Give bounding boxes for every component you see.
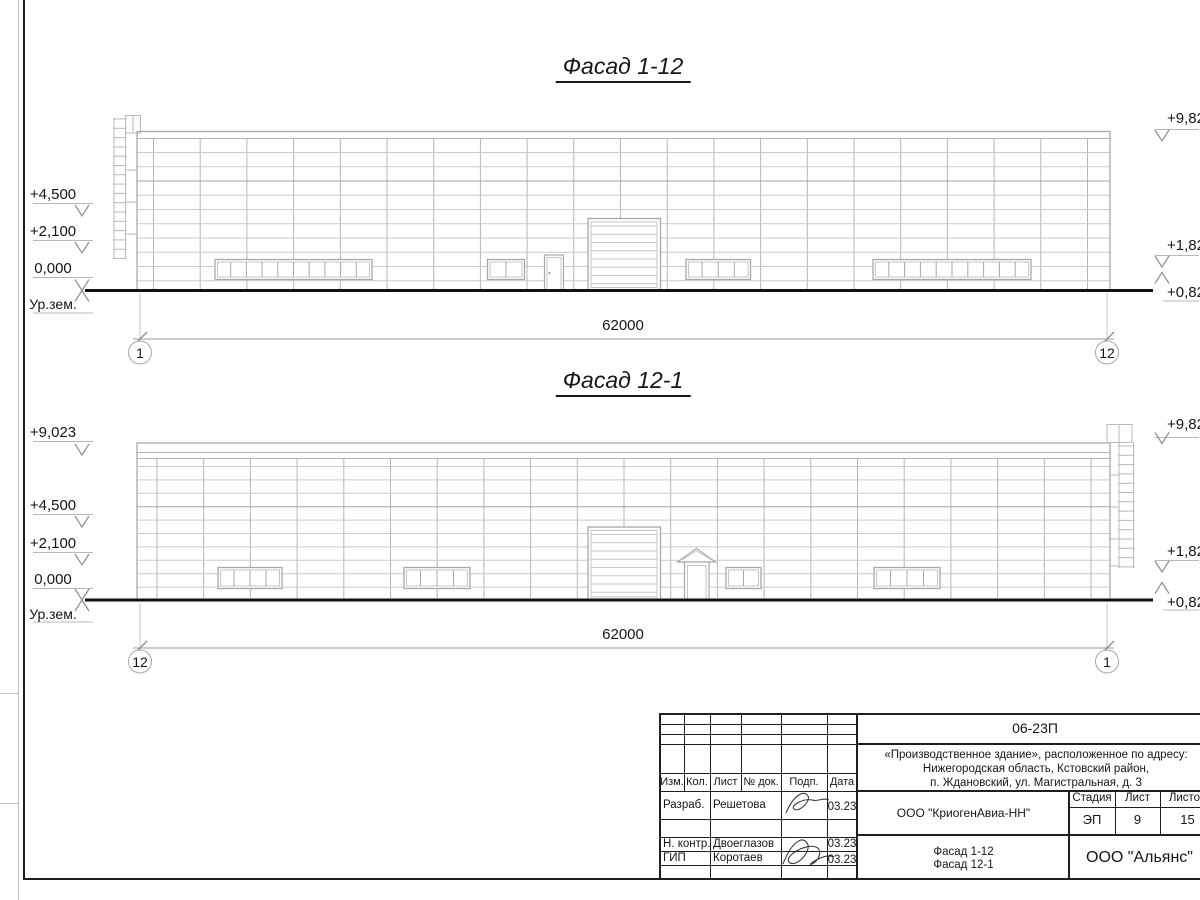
axis-bubble-label: 12 <box>1095 345 1119 361</box>
role-cell: Н. контр. <box>663 838 710 850</box>
ground-level-label: Ур.зем. <box>18 296 88 312</box>
stage-header: Стадия <box>1069 792 1115 804</box>
contractor-org: ООО "Альянс" <box>1069 849 1200 867</box>
project-line1: «Производственное здание», расположенное… <box>862 748 1200 762</box>
col-header-podp: Подп. <box>781 776 827 788</box>
axis-bubble-label: 12 <box>128 654 152 670</box>
project-description: «Производственное здание», расположенное… <box>862 748 1200 790</box>
project-line3: п. Ждановский, ул. Магистральная, д. 3 <box>862 776 1200 790</box>
drawing-sheet: Фасад 1-12 +4,500 +2,100 0,000 Ур.зем. +… <box>0 0 1200 900</box>
name-cell: Решетова <box>713 799 766 811</box>
elevation-label: +1,82 <box>1167 543 1200 560</box>
elevation-label: +4,500 <box>18 186 88 203</box>
elevation-label: +9,82 <box>1167 416 1200 433</box>
role-cell: ГИП <box>663 852 686 864</box>
role-cell: Разраб. <box>663 799 704 811</box>
drawing-name-line1: Фасад 1-12 <box>858 846 1069 858</box>
elevation-label: +0,82 <box>1167 594 1200 611</box>
col-header-izm: Изм. <box>660 776 684 788</box>
elevation-label: +0,82 <box>1167 284 1200 301</box>
elevation-label: +9,82 <box>1167 110 1200 127</box>
dimension-value: 62000 <box>573 317 673 334</box>
name-cell: Двоеглазов <box>713 838 774 850</box>
designer-org: ООО "КриогенАвиа-НН" <box>858 806 1069 820</box>
stage-value: ЭП <box>1069 812 1115 827</box>
elevation-label: +1,82 <box>1167 237 1200 254</box>
col-header-data: Дата <box>827 776 857 788</box>
drawing-name-line2: Фасад 12-1 <box>858 859 1069 871</box>
document-number: 06-23П <box>857 720 1200 736</box>
col-header-ndok: № док. <box>741 776 781 788</box>
axis-bubble-label: 1 <box>128 345 152 361</box>
col-header-list: Лист <box>710 776 741 788</box>
sheets-value: 15 <box>1160 812 1200 827</box>
elevation-label: +2,100 <box>18 535 88 552</box>
axis-bubble-label: 1 <box>1095 654 1119 670</box>
elevation-label: +4,500 <box>18 497 88 514</box>
facade1-title: Фасад 1-12 <box>556 53 691 83</box>
elevation-label: 0,000 <box>18 571 88 588</box>
col-header-kol: Кол. <box>684 776 710 788</box>
date-cell: 03.23 <box>827 838 857 850</box>
date-cell: 03.23 <box>827 854 857 866</box>
dimension-value: 62000 <box>573 626 673 643</box>
ground-level-label: Ур.зем. <box>18 606 88 622</box>
project-line2: Нижегородская область, Кстовский район, <box>862 762 1200 776</box>
name-cell: Коротаев <box>713 852 763 864</box>
date-cell: 03.23 <box>827 801 857 813</box>
sheet-value: 9 <box>1115 812 1160 827</box>
sheet-header: Лист <box>1115 792 1160 804</box>
elevation-label: 0,000 <box>18 260 88 277</box>
elevation-label: +9,023 <box>18 424 88 441</box>
sheets-header: Листов <box>1160 792 1200 804</box>
elevation-label: +2,100 <box>18 223 88 240</box>
facade2-title: Фасад 12-1 <box>556 367 691 397</box>
